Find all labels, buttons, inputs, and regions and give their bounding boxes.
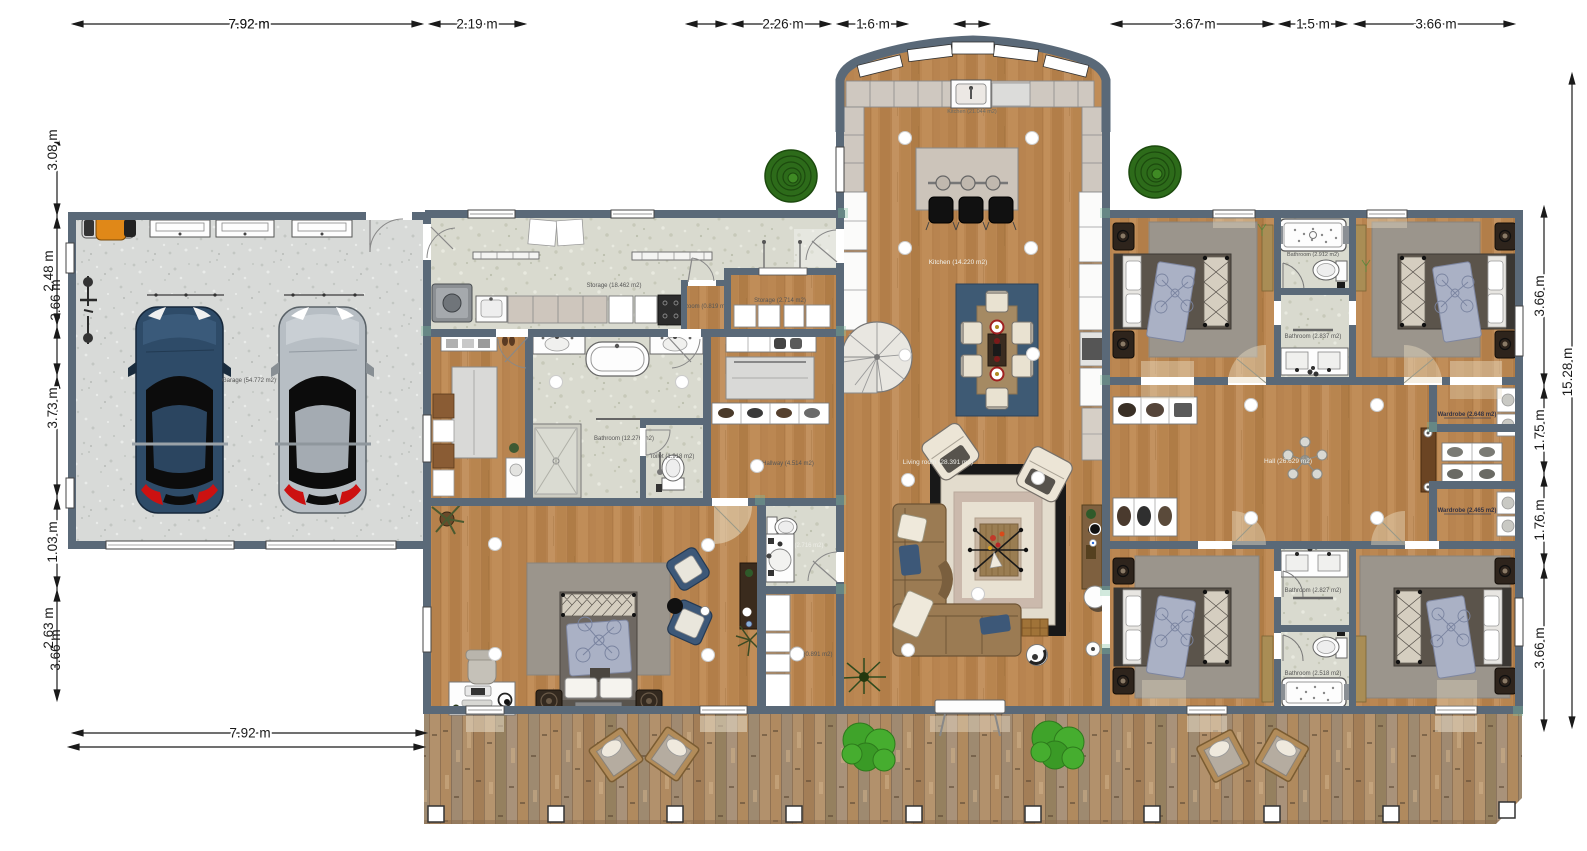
svg-text:7.92 m: 7.92 m	[229, 726, 270, 741]
svg-text:Storage (2.714 m2): Storage (2.714 m2)	[754, 298, 806, 304]
svg-text:2.19 m: 2.19 m	[456, 17, 497, 32]
svg-text:Wardrobe (2.648 m2): Wardrobe (2.648 m2)	[1438, 412, 1497, 418]
svg-text:Bathroom (2.912 m2): Bathroom (2.912 m2)	[1287, 252, 1339, 258]
svg-text:1.6 m: 1.6 m	[856, 17, 890, 32]
svg-text:Living room (28.391 m2): Living room (28.391 m2)	[903, 459, 973, 466]
svg-text:3.66 m: 3.66 m	[48, 279, 63, 320]
svg-text:Kitchen (21.044 m2): Kitchen (21.044 m2)	[947, 109, 997, 115]
svg-text:15.28 m: 15.28 m	[1560, 348, 1575, 397]
svg-text:3.67 m: 3.67 m	[1174, 17, 1215, 32]
svg-text:2.26 m: 2.26 m	[762, 17, 803, 32]
svg-text:3.66 m: 3.66 m	[48, 629, 63, 670]
svg-text:3.66 m: 3.66 m	[1532, 275, 1547, 316]
svg-text:3.66 m: 3.66 m	[1415, 17, 1456, 32]
svg-text:1.75 m: 1.75 m	[1532, 409, 1547, 450]
svg-text:(2.716 m2): (2.716 m2)	[794, 543, 823, 549]
svg-text:Room (0.819 m2: Room (0.819 m2	[684, 304, 729, 310]
svg-text:Bathroom (2.827 m2): Bathroom (2.827 m2)	[1285, 588, 1342, 594]
svg-text:Bathroom (2.518 m2): Bathroom (2.518 m2)	[1285, 671, 1342, 677]
svg-text:Bathroom (2.837 m2): Bathroom (2.837 m2)	[1285, 334, 1342, 340]
svg-text:7.92 m: 7.92 m	[228, 17, 269, 32]
svg-text:Garage (54.772 m2): Garage (54.772 m2)	[222, 378, 276, 384]
svg-text:(0.891 m2): (0.891 m2)	[803, 652, 832, 658]
svg-text:Wardrobe (2.465 m2): Wardrobe (2.465 m2)	[1438, 508, 1497, 514]
svg-text:Kitchen (14.220 m2): Kitchen (14.220 m2)	[929, 259, 988, 266]
svg-text:3.73 m: 3.73 m	[45, 387, 60, 428]
svg-text:Hallway (4.514 m2): Hallway (4.514 m2)	[762, 461, 814, 467]
svg-text:Storage (18.462 m2): Storage (18.462 m2)	[586, 283, 641, 289]
svg-text:1.76 m: 1.76 m	[1532, 499, 1547, 540]
svg-text:1.03 m: 1.03 m	[45, 521, 60, 562]
svg-text:3.08 m: 3.08 m	[45, 129, 60, 170]
svg-text:Toilet (1.918 m2): Toilet (1.918 m2)	[650, 454, 695, 460]
svg-text:Hall (26.629 m2): Hall (26.629 m2)	[1264, 458, 1312, 465]
svg-text:1.5 m: 1.5 m	[1296, 17, 1330, 32]
svg-text:3.66 m: 3.66 m	[1532, 627, 1547, 668]
